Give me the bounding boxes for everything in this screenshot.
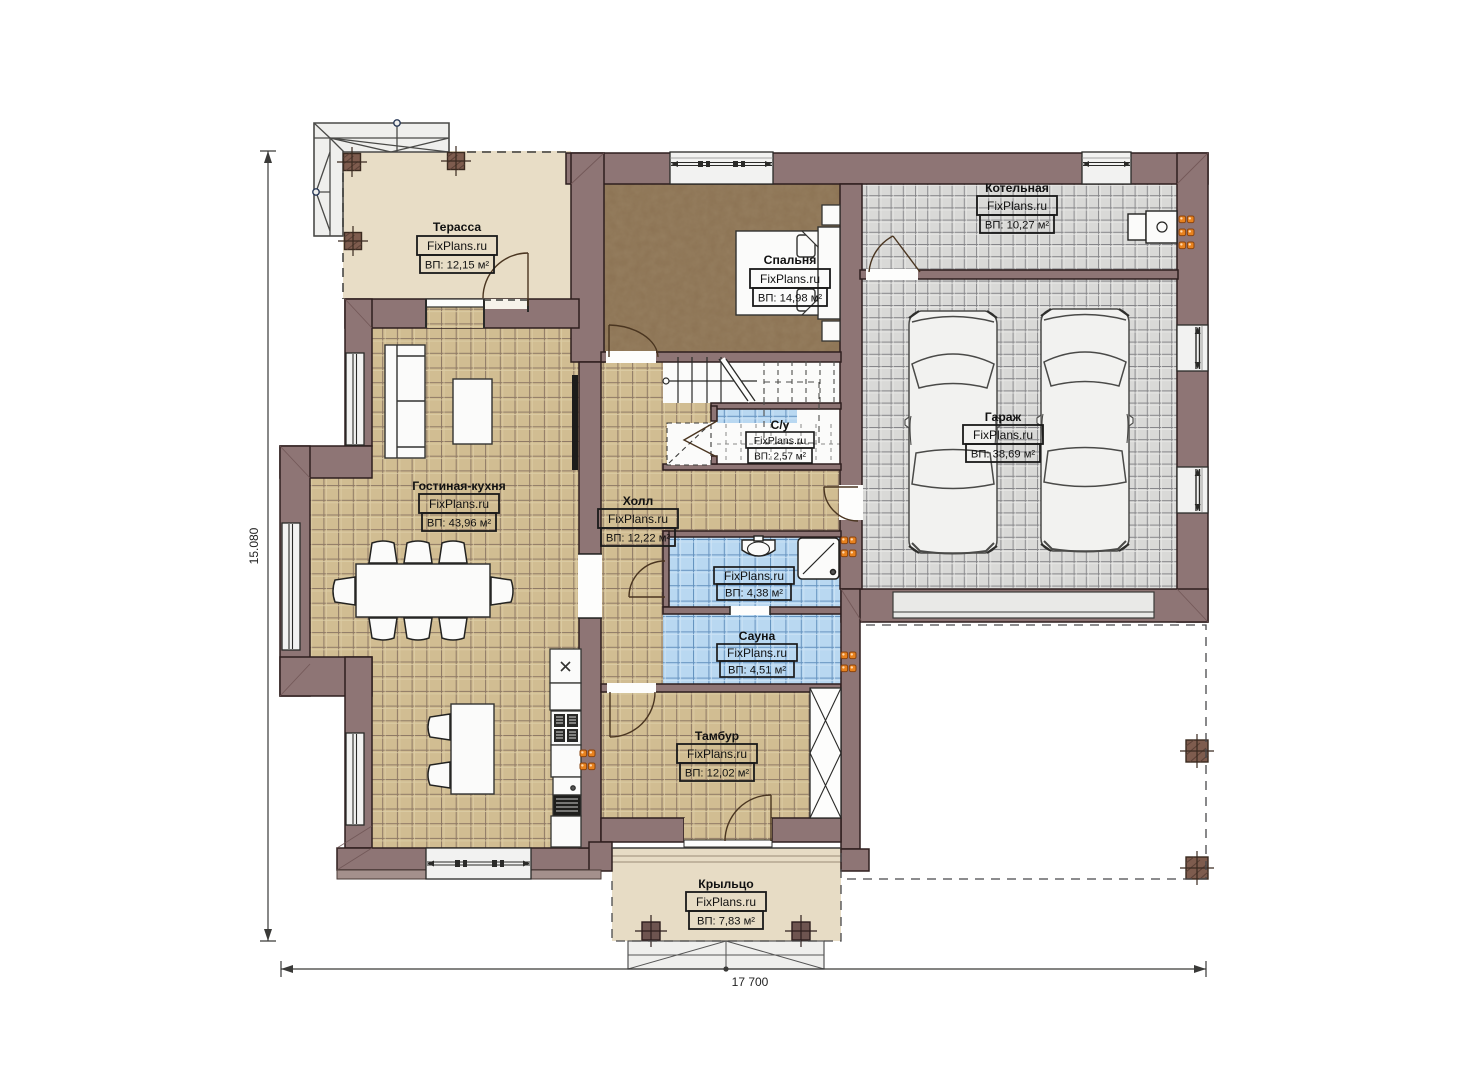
svg-text:ВП: 2,57 м²: ВП: 2,57 м² [754, 452, 807, 463]
svg-text:Терасса: Терасса [433, 220, 482, 234]
svg-text:Спальня: Спальня [764, 253, 817, 267]
svg-text:ВП: 4,51 м²: ВП: 4,51 м² [728, 665, 786, 677]
svg-text:Гараж: Гараж [985, 410, 1022, 424]
svg-text:FixPlans.ru: FixPlans.ru [427, 239, 487, 253]
svg-text:FixPlans.ru: FixPlans.ru [429, 497, 489, 511]
svg-text:ВП: 4,38 м²: ВП: 4,38 м² [725, 588, 783, 600]
svg-text:ВП: 12,15 м²: ВП: 12,15 м² [425, 260, 490, 272]
svg-text:FixPlans.ru: FixPlans.ru [987, 199, 1047, 213]
svg-text:FixPlans.ru: FixPlans.ru [724, 569, 784, 583]
svg-text:Тамбур: Тамбур [695, 729, 739, 743]
svg-text:Крыльцо: Крыльцо [698, 877, 753, 891]
svg-text:FixPlans.ru: FixPlans.ru [727, 646, 787, 660]
svg-text:FixPlans.ru: FixPlans.ru [760, 272, 820, 286]
svg-text:ВП: 43,96 м²: ВП: 43,96 м² [427, 518, 492, 530]
svg-text:Гостиная-кухня: Гостиная-кухня [412, 479, 505, 493]
svg-text:FixPlans.ru: FixPlans.ru [973, 428, 1033, 442]
svg-text:FixPlans.ru: FixPlans.ru [687, 747, 747, 761]
svg-text:17 700: 17 700 [732, 975, 769, 989]
svg-text:ВП: 38,69 м²: ВП: 38,69 м² [971, 449, 1036, 461]
svg-text:FixPlans.ru: FixPlans.ru [696, 895, 756, 909]
svg-text:Сауна: Сауна [739, 629, 776, 643]
svg-text:С/у: С/у [771, 418, 790, 432]
svg-text:ВП: 10,27 м²: ВП: 10,27 м² [985, 220, 1050, 232]
svg-text:ВП: 7,83 м²: ВП: 7,83 м² [697, 916, 755, 928]
svg-text:ВП: 14,98 м²: ВП: 14,98 м² [758, 293, 823, 305]
svg-text:FixPlans.ru: FixPlans.ru [608, 512, 668, 526]
svg-text:15.080: 15.080 [247, 527, 261, 564]
svg-text:ВП: 12,02 м²: ВП: 12,02 м² [685, 768, 750, 780]
svg-text:Холл: Холл [623, 494, 654, 508]
svg-text:FixPlans.ru: FixPlans.ru [754, 435, 807, 447]
svg-text:Котельная: Котельная [985, 181, 1049, 195]
svg-text:ВП: 12,22 м²: ВП: 12,22 м² [606, 533, 671, 545]
